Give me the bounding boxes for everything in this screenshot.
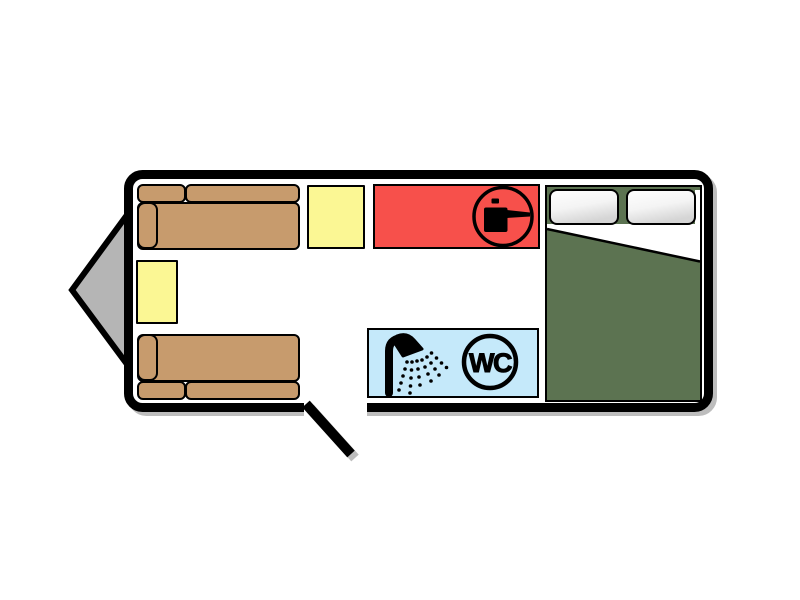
- pillow-left: [550, 190, 618, 224]
- sofa-top-seat: [137, 202, 300, 250]
- cabinet-front: [136, 260, 178, 324]
- sofa-bottom-seat: [137, 334, 300, 382]
- shower-icon: [381, 334, 453, 396]
- pillow-right: [627, 190, 695, 224]
- pot-body: [484, 208, 508, 233]
- sofa-top-backrest-right: [185, 184, 300, 203]
- shower-spray-dots: [397, 351, 448, 395]
- kitchen-unit: [373, 184, 540, 249]
- pot-handle: [507, 210, 530, 218]
- wc-label: WC: [469, 348, 512, 378]
- pot-lid-knob: [492, 199, 500, 204]
- sofa-top-armrest: [137, 202, 158, 249]
- cabinet-top: [307, 185, 365, 249]
- bed-graphics: [547, 187, 700, 400]
- bathroom-unit: WC: [367, 328, 539, 398]
- sofa-top-backrest-left: [137, 184, 186, 203]
- cooking-pot-icon: [471, 184, 535, 248]
- double-bed: [545, 185, 702, 402]
- sofa-bottom-armrest: [137, 334, 158, 381]
- sofa-bottom-backrest-right: [185, 381, 300, 400]
- sofa-bottom-backrest-left: [137, 381, 186, 400]
- floorplan-canvas: WC: [0, 0, 800, 600]
- shower-head: [394, 335, 422, 356]
- wc-roundel: WC: [459, 331, 521, 393]
